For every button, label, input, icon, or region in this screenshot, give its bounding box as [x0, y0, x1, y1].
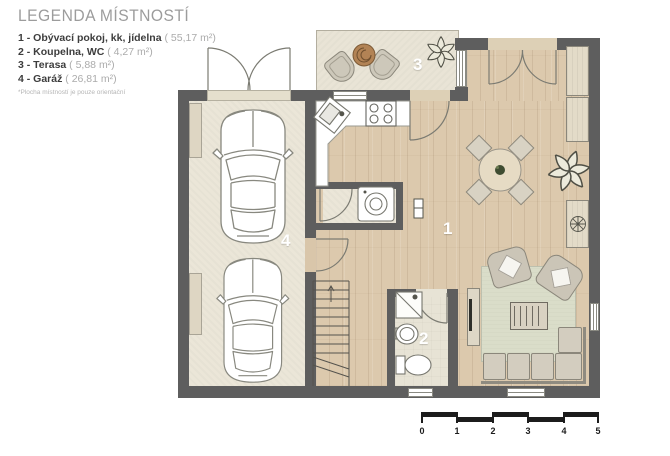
tv [469, 299, 472, 331]
garage-shelf-top [189, 103, 202, 158]
scale-segment [457, 417, 493, 422]
utility-floor [323, 189, 396, 223]
garage-hall-door-opening [305, 238, 316, 272]
scale-tick [492, 412, 494, 423]
wall-utility-right [396, 182, 403, 230]
scale-segment [421, 412, 457, 417]
scale-segment [564, 412, 599, 417]
room-label-living: 1 [443, 219, 452, 239]
coffee-table [510, 302, 548, 330]
scale-tick [527, 412, 529, 423]
garage-double-door [208, 48, 290, 90]
floor-plan: 1 2 3 4 [0, 0, 670, 456]
wall-terrace-stub [455, 87, 468, 101]
bathroom-window [408, 388, 433, 397]
room-label-bathroom: 2 [419, 329, 428, 349]
scale-label: 3 [521, 426, 535, 436]
room-label-garage: 4 [281, 231, 290, 251]
sofa-backrest [481, 381, 585, 384]
living-right-window [590, 303, 599, 331]
scale-tick [421, 412, 423, 423]
scale-tick [597, 412, 599, 423]
wall-bathroom-right [448, 289, 458, 386]
scale-segment [528, 417, 564, 422]
scale-label: 2 [486, 426, 500, 436]
wall-utility-bottom [316, 223, 403, 230]
kitchen-window [333, 91, 367, 100]
bathroom-door-opening [416, 289, 447, 297]
sofa-corner-cushion [555, 353, 582, 380]
wall-utility-top [316, 182, 403, 189]
wall-cabinet-2 [566, 97, 589, 142]
wall-cabinet-1 [566, 46, 589, 96]
sofa-side-cushion [558, 327, 582, 353]
wall-bathroom-left [387, 289, 395, 386]
wall-right [589, 38, 600, 398]
wall-cabinet-3 [566, 200, 589, 248]
sofa-armrest [583, 327, 586, 384]
scale-label: 0 [415, 426, 429, 436]
garage-door-opening [207, 90, 291, 101]
sofa-cushion [531, 353, 554, 380]
wall-left [178, 90, 189, 398]
scale-tick [563, 412, 565, 423]
living-bottom-window [507, 388, 545, 397]
terrace-side-window [456, 50, 467, 87]
scale-tick [456, 412, 458, 423]
scale-label: 4 [557, 426, 571, 436]
sofa-cushion [507, 353, 530, 380]
floorplan-page: { "legend": { "title": "LEGENDA MÍSTNOST… [0, 0, 670, 456]
room-label-terrace: 3 [413, 55, 422, 75]
sofa-cushion [483, 353, 506, 380]
garage-shelf-bottom [189, 273, 202, 335]
terrace-door-opening [410, 90, 450, 101]
scale-label: 1 [450, 426, 464, 436]
scale-label: 5 [591, 426, 605, 436]
scale-segment [493, 412, 528, 417]
scale-bar: 0 1 2 3 4 5 [421, 407, 601, 441]
french-door-opening [488, 38, 557, 50]
